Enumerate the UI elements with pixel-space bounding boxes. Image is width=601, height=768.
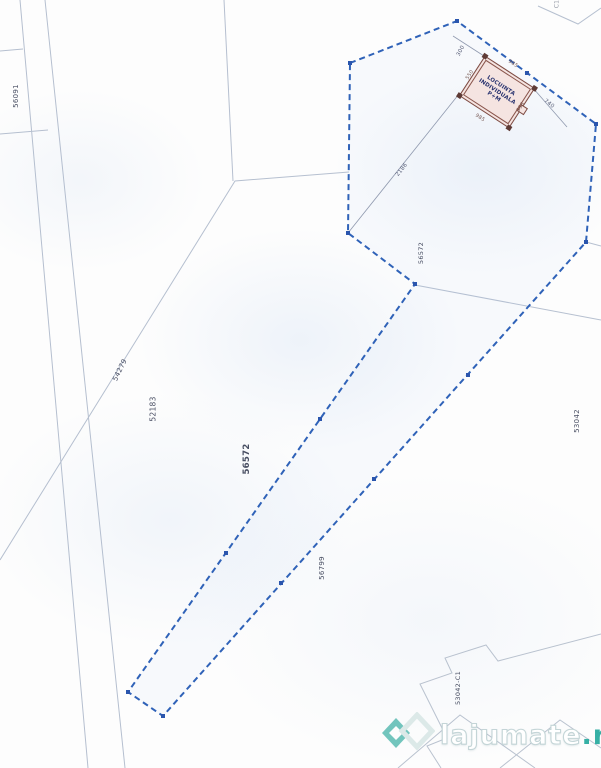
parcel-label-top-left-sliver: 56091	[12, 84, 20, 108]
watermark-brand-tld: .ro	[582, 720, 601, 751]
cadastral-site-plan: LOCUINTA INDIVIDUALA P+M 985 985 550 558…	[0, 0, 601, 768]
watermark-brand-name: lajumate	[440, 720, 582, 751]
parcel-label-corner-building: 53042-C1	[454, 671, 462, 705]
parcel-label-strip-center: 56572	[242, 443, 252, 474]
parcel-label-strip-top: 56572	[417, 242, 425, 264]
watermark-text: lajumate.ro	[440, 720, 601, 751]
parcel-label-right-field: 53042	[573, 409, 581, 433]
parcel-label-left-field: 52183	[149, 396, 158, 421]
building-label: LOCUINTA INDIVIDUALA P+M	[473, 72, 520, 113]
lajumate-logo-icon	[381, 712, 435, 758]
watermark: lajumate.ro	[381, 712, 601, 758]
parcel-label-top-edge-partial: C1	[554, 0, 561, 8]
parcel-label-below-strip: 56799	[318, 556, 326, 580]
property-boundary-dashed	[128, 21, 596, 716]
